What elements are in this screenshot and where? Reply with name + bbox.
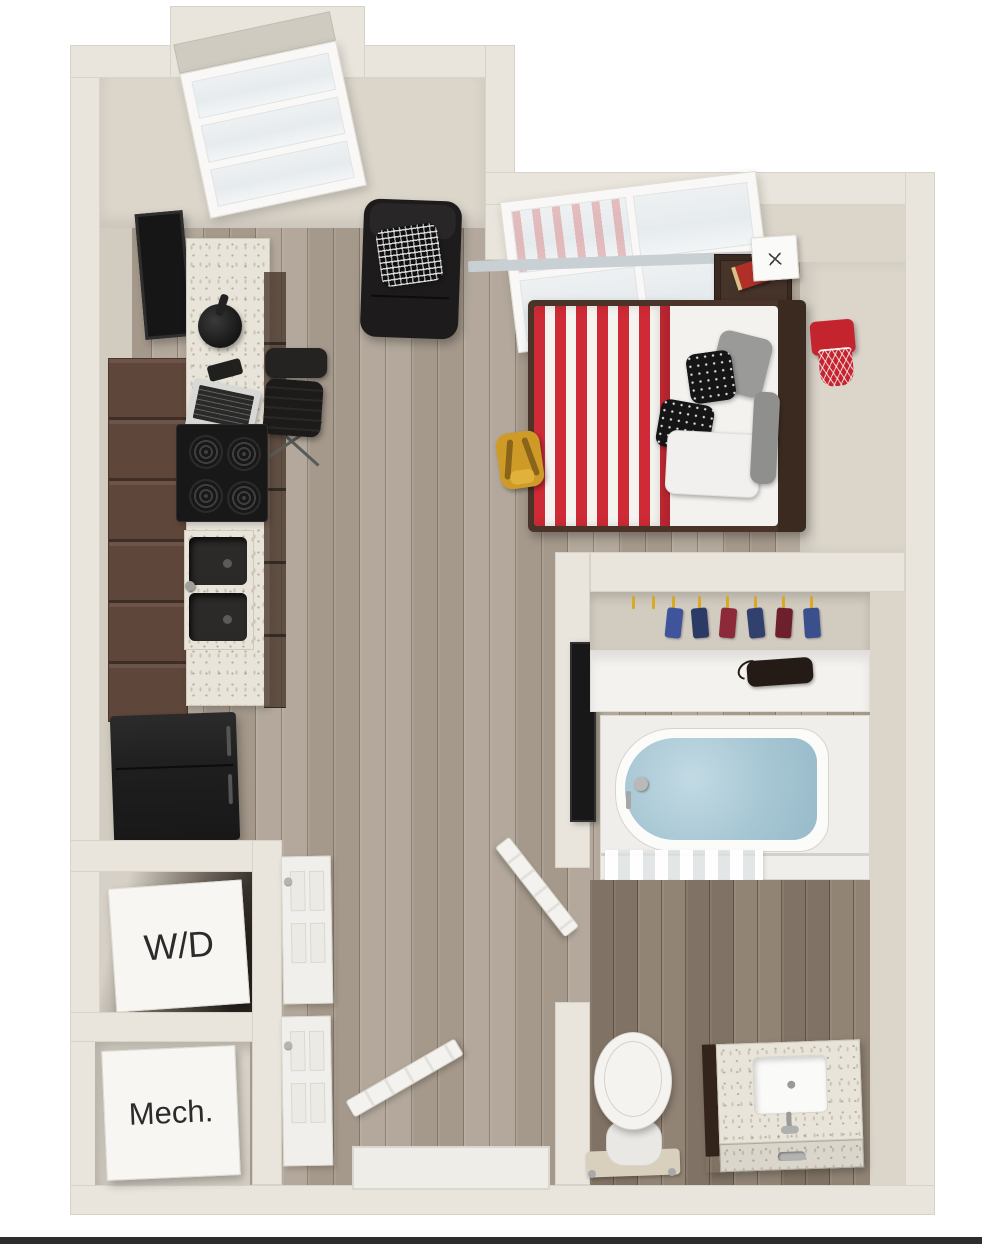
lamp-inner-mark xyxy=(769,253,782,266)
page-bottom-bar xyxy=(0,1237,982,1244)
hanging-shirt xyxy=(746,607,765,639)
hanging-shirt xyxy=(719,607,738,638)
hanging-shirt xyxy=(664,607,683,639)
maze-pillow xyxy=(375,222,444,288)
refrigerator xyxy=(110,712,240,844)
bed xyxy=(528,300,806,532)
door-knob xyxy=(284,1041,292,1049)
vanity xyxy=(702,1039,864,1172)
closet-door-lower xyxy=(281,1016,334,1167)
stove-burner xyxy=(227,437,261,471)
mechanical-unit: Mech. xyxy=(101,1045,241,1181)
stove-burner xyxy=(189,479,223,513)
toilet-lid xyxy=(594,1032,672,1130)
fridge-handle xyxy=(228,774,233,804)
floor-plan-render: W/D Mech. xyxy=(0,0,982,1244)
white-pillow xyxy=(664,430,761,499)
upper-cabinets xyxy=(108,358,188,722)
door-panel xyxy=(310,1083,326,1123)
sink-counter xyxy=(184,530,254,650)
bathtub-basin xyxy=(615,728,829,852)
gray-pillow xyxy=(750,391,781,484)
tub-faucet xyxy=(634,777,648,791)
door-knob xyxy=(284,877,292,885)
closet-divider-wall xyxy=(70,1012,260,1042)
fridge-divider xyxy=(116,764,234,770)
window-pane xyxy=(632,182,754,258)
hanging-shirt xyxy=(803,607,821,638)
hanging-shirt xyxy=(775,607,793,638)
door-panel xyxy=(291,1083,307,1123)
striped-blanket xyxy=(534,306,670,526)
door-panel xyxy=(290,871,306,911)
stove-burner xyxy=(227,481,261,515)
cube-lamp xyxy=(751,234,800,281)
hanging-shirt xyxy=(691,607,710,638)
vanity-sink xyxy=(752,1054,828,1115)
bath-water xyxy=(625,738,817,840)
washer-dryer-label: W/D xyxy=(143,923,216,970)
entry-threshold xyxy=(352,1146,550,1190)
stove-burner xyxy=(189,435,223,469)
chaise-seat-seam xyxy=(371,295,449,300)
door-panel xyxy=(309,871,325,911)
toilet-foot xyxy=(588,1170,596,1178)
sink-drain xyxy=(223,559,232,568)
toilet-lid-seam xyxy=(604,1041,662,1117)
backpack-pocket xyxy=(510,468,536,485)
closet-right-wall xyxy=(252,840,282,1185)
closet-shelf xyxy=(590,650,870,712)
sink-faucet xyxy=(185,581,195,591)
headboard xyxy=(778,300,806,532)
clothes-hanger xyxy=(632,596,635,609)
toilet-foot xyxy=(668,1168,676,1176)
laundry-closet-top-wall xyxy=(70,840,270,872)
washer-dryer-unit: W/D xyxy=(108,879,250,1012)
chaise-lounge xyxy=(360,198,463,339)
door-panel xyxy=(310,923,326,963)
vanity-faucet-base xyxy=(781,1125,799,1134)
right-wall-face-upper xyxy=(800,262,905,555)
coffee-maker xyxy=(196,296,244,350)
basketball-hoop xyxy=(809,314,865,390)
right-wall xyxy=(905,172,935,1215)
closet-back xyxy=(590,592,870,650)
closet-top-wall xyxy=(590,552,905,592)
chair-seat xyxy=(262,378,324,438)
door-panel xyxy=(291,923,307,963)
partition-wall-lower xyxy=(555,1002,590,1185)
tub-spout xyxy=(626,791,631,809)
range-stove xyxy=(176,424,268,522)
sink-drain xyxy=(787,1081,795,1089)
hoop-net xyxy=(818,347,855,388)
mechanical-label: Mech. xyxy=(128,1093,214,1133)
right-wall-face-lower xyxy=(870,555,905,1185)
chair-backrest xyxy=(265,348,327,378)
yellow-backpack xyxy=(494,429,545,491)
sink-basin xyxy=(189,537,247,585)
drawer-pull xyxy=(778,1151,806,1161)
toilet xyxy=(586,1012,680,1178)
polka-dot-pillow xyxy=(685,349,738,405)
sink-basin xyxy=(189,593,247,641)
bathtub-deck xyxy=(600,715,870,880)
fridge-handle xyxy=(226,726,231,756)
door-panel xyxy=(309,1031,325,1071)
door-panel xyxy=(290,1031,306,1071)
sink-drain xyxy=(223,615,232,624)
closet-door-upper xyxy=(281,856,334,1005)
clothes-hanger xyxy=(652,596,655,609)
